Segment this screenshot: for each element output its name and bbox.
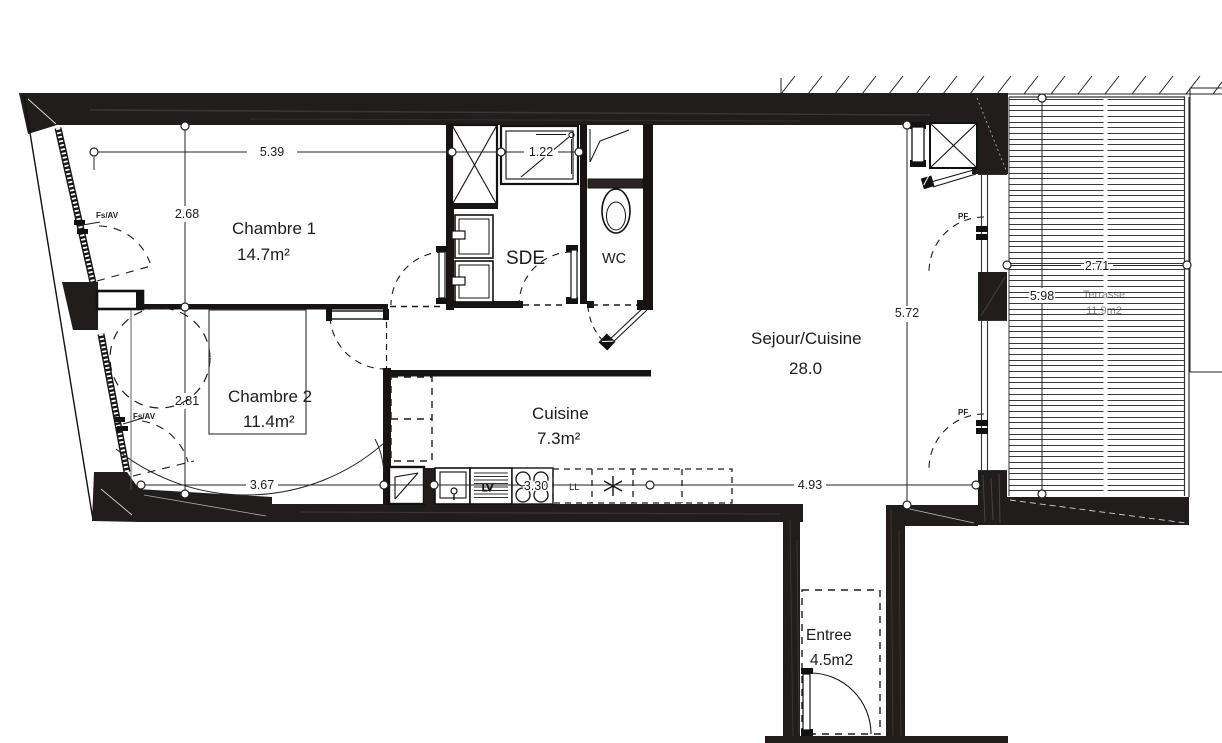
svg-text:LL: LL (569, 482, 580, 493)
svg-text:Entree: Entree (806, 627, 852, 644)
svg-text:Fs/AV: Fs/AV (133, 412, 156, 421)
svg-text:7.3m²: 7.3m² (537, 429, 581, 448)
svg-text:Chambre 1: Chambre 1 (232, 219, 316, 238)
svg-text:Fs/AV: Fs/AV (96, 211, 119, 220)
svg-text:3.30: 3.30 (524, 479, 548, 493)
svg-text:SDE: SDE (506, 248, 545, 269)
svg-text:2.71: 2.71 (1085, 259, 1109, 273)
svg-text:5.39: 5.39 (260, 145, 284, 159)
svg-text:2.81: 2.81 (175, 394, 199, 408)
svg-text:PF: PF (958, 408, 968, 417)
svg-text:4.5m2: 4.5m2 (810, 652, 853, 669)
svg-text:28.0: 28.0 (789, 359, 822, 378)
svg-text:3.67: 3.67 (250, 478, 274, 492)
svg-text:5.72: 5.72 (895, 306, 919, 320)
svg-text:1.22: 1.22 (529, 145, 553, 159)
svg-text:2.68: 2.68 (175, 207, 199, 221)
svg-text:WC: WC (602, 251, 626, 267)
svg-text:4.93: 4.93 (798, 478, 822, 492)
svg-text:11.4m²: 11.4m² (243, 412, 295, 431)
svg-text:Chambre 2: Chambre 2 (228, 387, 312, 406)
svg-text:Sejour/Cuisine: Sejour/Cuisine (751, 329, 862, 348)
svg-text:PF: PF (958, 212, 968, 221)
svg-text:Cuisine: Cuisine (532, 404, 589, 423)
svg-text:Terrasse: Terrasse (1083, 289, 1125, 301)
svg-text:5.98: 5.98 (1030, 289, 1054, 303)
svg-text:11.9m2: 11.9m2 (1086, 305, 1122, 317)
svg-text:14.7m²: 14.7m² (237, 245, 290, 264)
